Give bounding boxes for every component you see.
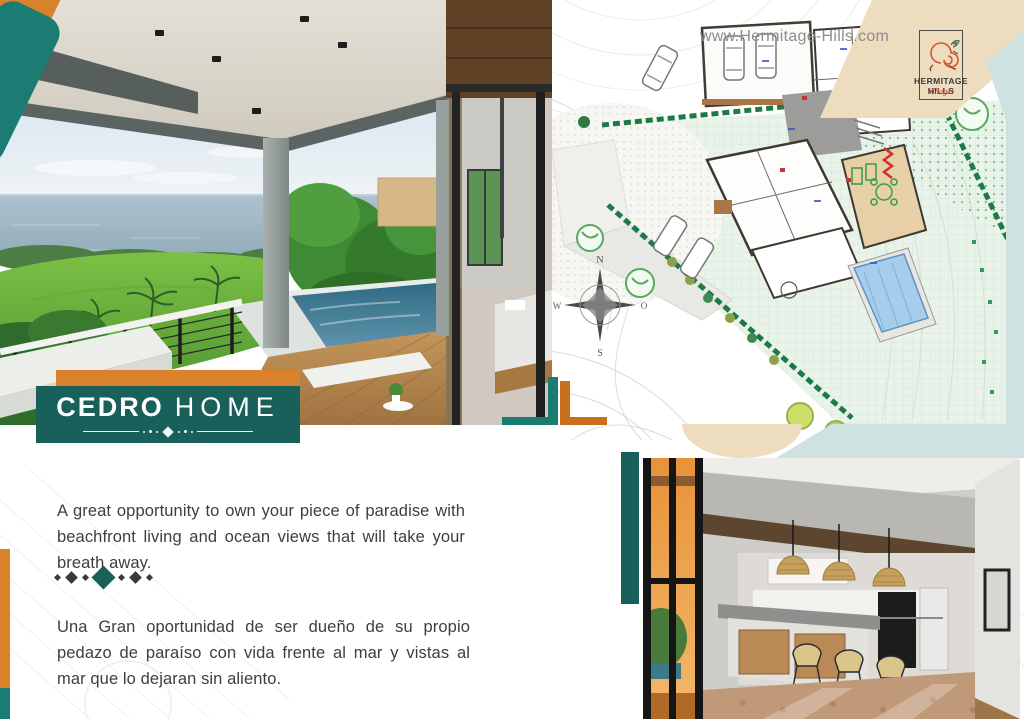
hermitage-hills-logo: HERMITAGE HILLS Villages	[901, 30, 981, 104]
hermit-crab-icon	[921, 33, 961, 75]
teal-corner-bracket	[502, 377, 558, 425]
left-edge-bar-teal	[0, 688, 10, 719]
brochure-page: N W O S	[0, 0, 1024, 719]
orange-corner-bracket	[560, 381, 607, 425]
title-secondary: HOME	[175, 394, 280, 421]
website-url: www.Hermitage-Hills.com	[700, 28, 900, 46]
diamond-divider	[55, 567, 152, 587]
pale-blue-strip	[986, 30, 1024, 438]
page-title: CEDRO HOME	[56, 394, 280, 421]
description-english: A great opportunity to own your piece of…	[57, 498, 465, 576]
beige-half-ellipse	[682, 424, 802, 458]
logo-tagline: Villages	[901, 87, 981, 96]
left-edge-bar-orange	[0, 549, 10, 688]
description-spanish: Una Gran oportunidad de ser dueño de su …	[57, 614, 470, 692]
pale-blue-band	[776, 424, 1024, 458]
title-banner: CEDRO HOME	[36, 386, 300, 443]
title-divider	[83, 428, 253, 436]
decor-shapes	[0, 0, 1024, 719]
kitchen-accent-bar	[621, 452, 639, 604]
banner-accent-bar	[56, 370, 300, 386]
title-primary: CEDRO	[56, 394, 164, 421]
